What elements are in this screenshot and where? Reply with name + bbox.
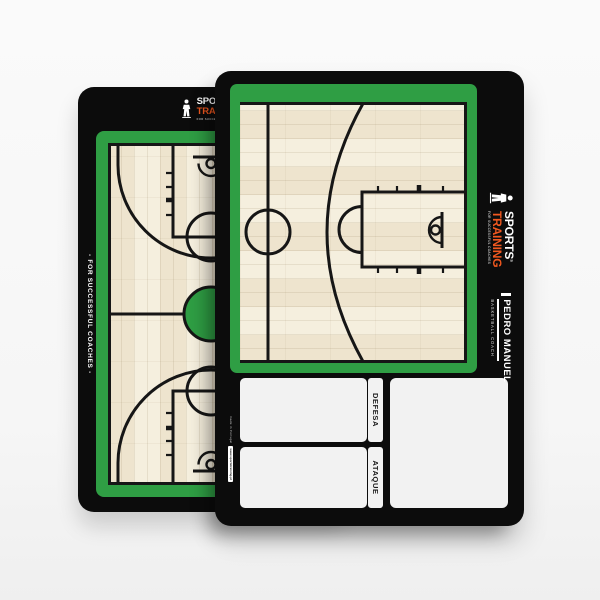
- website-badge: www.sportstraining.pt: [229, 446, 234, 482]
- trademark-symbol: ®: [509, 259, 514, 262]
- attack-label: ATAQUE: [368, 447, 382, 508]
- name-underline: [497, 299, 499, 361]
- front-board-court: [240, 102, 467, 363]
- front-board-side-band: SPORTS® TRAINING FOR SUCCESSFUL COACHES …: [478, 72, 524, 522]
- rim: [431, 226, 440, 235]
- defense-label: DEFESA: [368, 378, 382, 442]
- front-board-brand-logo: SPORTS® TRAINING FOR SUCCESSFUL COACHES: [487, 190, 516, 267]
- made-in-text: made in Portugal: [229, 416, 233, 443]
- coach-title: BASKETBALL COACH: [490, 299, 495, 382]
- defense-notes-panel: [240, 378, 367, 442]
- brand-line1: SPORTS®: [503, 211, 515, 267]
- coach-name-block: PEDRO MANUEL BASKETBALL COACH: [490, 293, 512, 382]
- product-photo-scene: SPORTS® TRAINING FOR SUCCESSFUL COACHES …: [0, 0, 600, 600]
- board-footer: made in Portugal www.sportstraining.pt: [228, 416, 234, 486]
- side-slogan-text: - FOR SUCCESSFUL COACHES -: [83, 234, 95, 394]
- coach-figure-icon: [180, 98, 193, 120]
- front-court-diagram: [240, 102, 467, 363]
- coach-figure-icon: [488, 190, 514, 206]
- name-accent-tick: [501, 293, 511, 296]
- attack-notes-panel: [240, 447, 367, 508]
- front-tactic-board: DEFESA ATAQUE SPORTS® TRAINING FOR SUCCE…: [215, 71, 524, 526]
- brand-line2: TRAINING: [491, 211, 503, 267]
- three-point-arc: [327, 104, 363, 362]
- coach-name: PEDRO MANUEL: [501, 299, 512, 382]
- free-throw-semicircle: [339, 207, 362, 253]
- brand-tagline: FOR SUCCESSFUL COACHES: [487, 211, 490, 267]
- key: [362, 192, 466, 267]
- key-hashes: [378, 185, 443, 274]
